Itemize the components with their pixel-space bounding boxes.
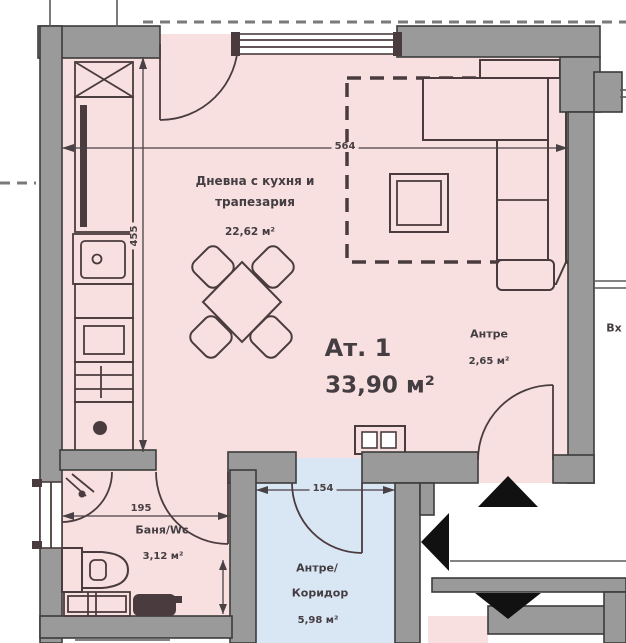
corridor-area: 5,98 м² [298,616,339,626]
bathroom-label: Баня/Wc [135,525,188,536]
hall-label: Антре [470,329,508,340]
wall-bath-bottom [40,616,232,638]
living-room-label-line2: трапезария [215,196,295,208]
wall-bath-right [230,470,256,643]
kitchen-dot [93,421,107,435]
dim-154-label: 154 [310,484,337,494]
living-room-label-line1: Дневна с кухня и [196,175,315,187]
dim-455-label: 455 [130,223,140,250]
wall-landing [432,578,626,592]
coffee-table [390,174,448,232]
washbasin [133,594,182,616]
stair-arrows [421,476,626,619]
toilet [62,548,128,592]
wall-right [568,112,594,483]
floor-plan: Дневна с кухня и трапезария 22,62 м² Ат.… [0,0,626,643]
corridor-label-line1: Антре/ [296,563,338,574]
arrow-left-icon [421,513,449,571]
apartment-label: Ат. 1 [325,336,392,360]
floor-plan-drawing [0,0,626,643]
wall-left [40,26,62,643]
dim-564-label: 564 [332,142,359,152]
bathroom-area: 3,12 м² [143,552,184,562]
apartment-area: 33,90 м² [325,375,435,398]
wall-top-right [397,26,600,57]
window-top [236,34,397,54]
edge-entrance-label: Вх [606,323,621,334]
hall-area: 2,65 м² [469,357,510,367]
corridor-label-line2: Коридор [292,588,348,599]
wall-corridor-right [395,483,420,643]
dim-195-label: 195 [128,504,155,514]
living-room-area: 22,62 м² [225,227,275,238]
electrical-box [355,426,405,454]
dining-set [187,243,297,361]
